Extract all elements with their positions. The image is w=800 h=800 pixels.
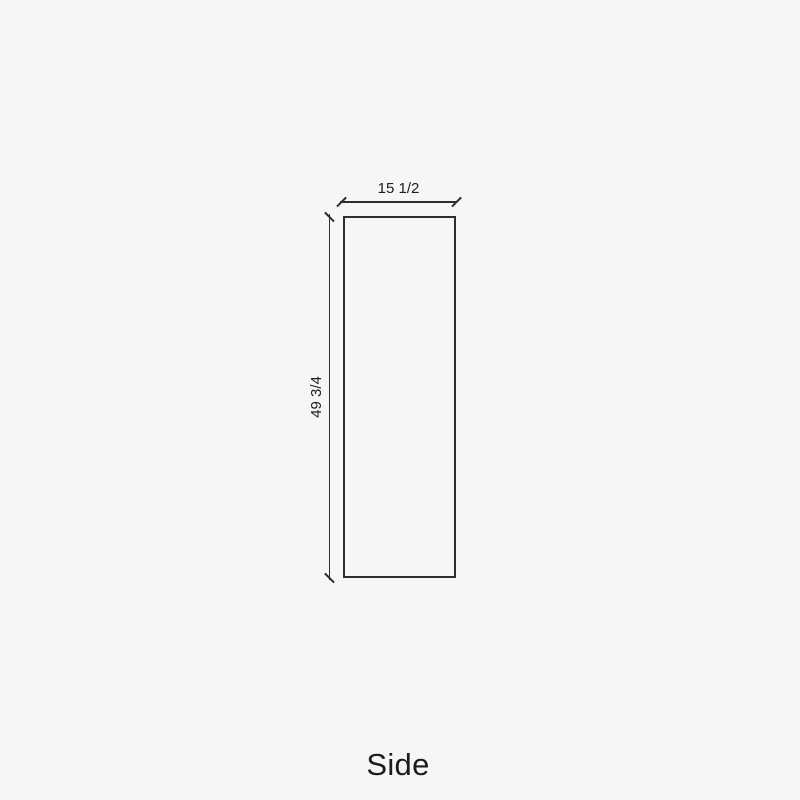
dimension-drawing-canvas: 15 1/2 49 3/4 Side (0, 0, 800, 800)
width-dimension-line (340, 201, 457, 203)
view-caption: Side (0, 749, 796, 781)
panel-outline (343, 216, 456, 578)
width-dimension-label: 15 1/2 (340, 179, 457, 199)
height-dimension-label: 49 3/4 (307, 317, 327, 477)
height-dimension-line (329, 214, 331, 580)
